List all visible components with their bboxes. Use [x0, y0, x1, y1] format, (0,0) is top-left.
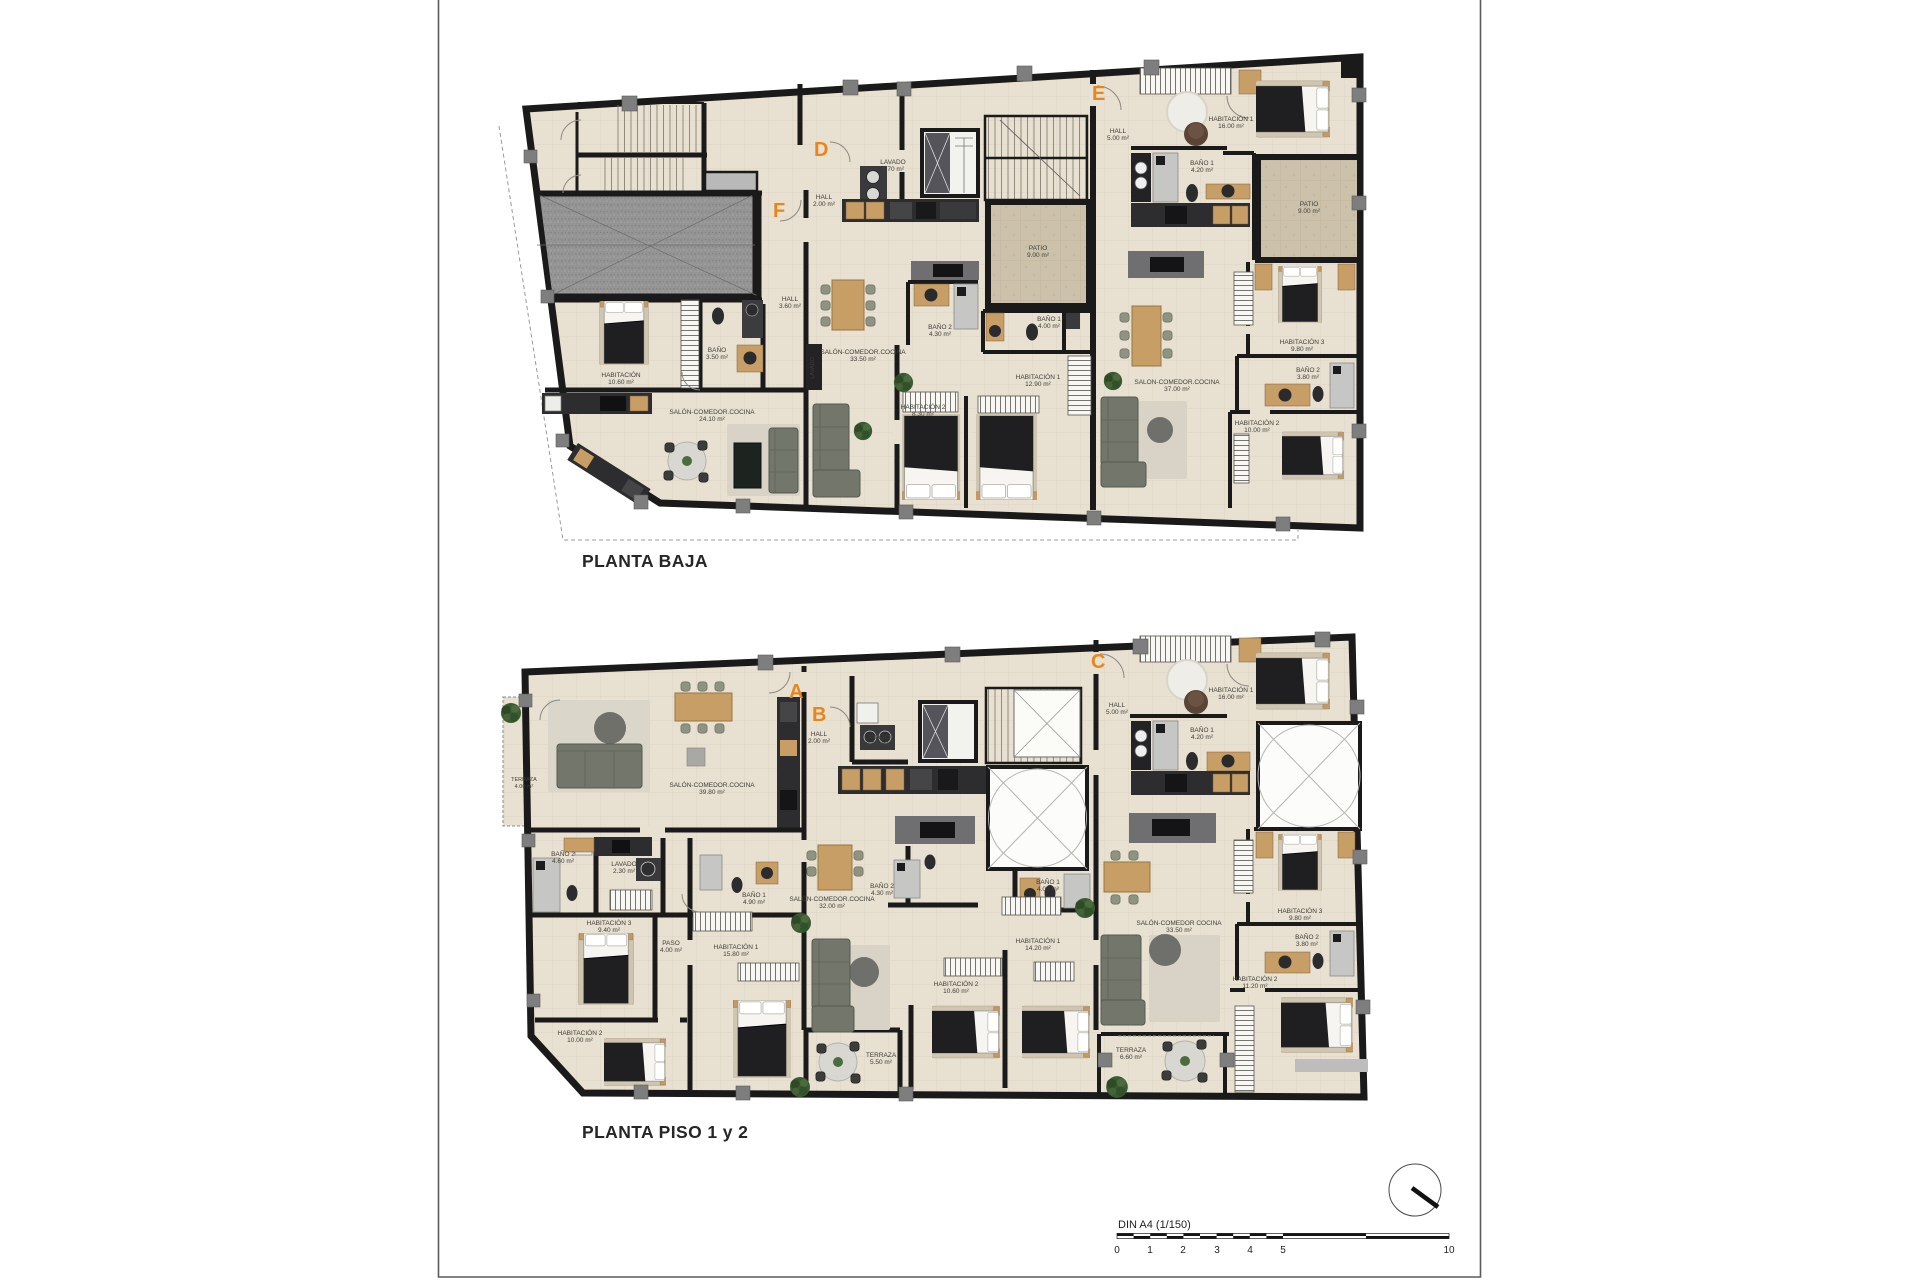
svg-text:3.80 m²: 3.80 m²: [1296, 941, 1319, 948]
svg-text:4.90 m²: 4.90 m²: [743, 899, 766, 906]
svg-text:PASO: PASO: [662, 940, 680, 947]
svg-text:16.00 m²: 16.00 m²: [1218, 694, 1244, 701]
svg-text:BAÑO: BAÑO: [708, 345, 726, 354]
svg-text:HABITACIÓN 3: HABITACIÓN 3: [1280, 337, 1325, 346]
svg-text:TERRAZA: TERRAZA: [1116, 1047, 1147, 1054]
svg-text:4.00 m²: 4.00 m²: [660, 947, 683, 954]
svg-text:39.80 m²: 39.80 m²: [699, 789, 725, 796]
svg-text:BAÑO 1: BAÑO 1: [1037, 314, 1061, 323]
svg-text:37.00 m²: 37.00 m²: [1164, 386, 1190, 393]
svg-text:BAÑO 1: BAÑO 1: [1036, 877, 1060, 886]
svg-text:3.80 m²: 3.80 m²: [866, 741, 889, 748]
svg-text:BAÑO 1: BAÑO 1: [1190, 725, 1214, 734]
svg-text:32.00 m²: 32.00 m²: [819, 903, 845, 910]
svg-text:C: C: [1091, 651, 1105, 673]
svg-text:8.30 m²: 8.30 m²: [912, 411, 935, 418]
svg-text:HABITACIÓN 2: HABITACIÓN 2: [558, 1028, 603, 1037]
svg-text:9.80 m²: 9.80 m²: [1291, 346, 1314, 353]
svg-text:2.70 m²: 2.70 m²: [882, 166, 905, 173]
svg-text:16.00 m²: 16.00 m²: [1218, 123, 1244, 130]
svg-text:1: 1: [1147, 1245, 1153, 1256]
svg-text:B: B: [812, 704, 826, 726]
svg-text:HABITACIÓN 3: HABITACIÓN 3: [1278, 906, 1323, 915]
svg-text:3.80 m²: 3.80 m²: [1297, 374, 1320, 381]
svg-text:PATIO: PATIO: [1300, 201, 1319, 208]
svg-text:4.20 m²: 4.20 m²: [1191, 167, 1214, 174]
svg-text:9.80 m²: 9.80 m²: [1289, 915, 1312, 922]
svg-text:10.60 m²: 10.60 m²: [943, 988, 969, 995]
svg-text:4.20 m²: 4.20 m²: [1191, 734, 1214, 741]
svg-text:HABITACIÓN 3: HABITACIÓN 3: [587, 918, 632, 927]
svg-text:9.00 m²: 9.00 m²: [1027, 252, 1050, 259]
svg-text:F: F: [773, 200, 785, 222]
svg-text:HALL: HALL: [1110, 128, 1127, 135]
svg-text:5.50 m²: 5.50 m²: [870, 1059, 893, 1066]
svg-text:HALL: HALL: [816, 194, 833, 201]
svg-text:0: 0: [1114, 1245, 1120, 1256]
svg-text:9.40 m²: 9.40 m²: [598, 927, 621, 934]
svg-text:5.00 m²: 5.00 m²: [1106, 709, 1129, 716]
svg-text:10.00 m²: 10.00 m²: [567, 1037, 593, 1044]
svg-text:4.00 m²: 4.00 m²: [1038, 323, 1061, 330]
svg-text:6.60 m²: 6.60 m²: [1120, 1054, 1143, 1061]
svg-text:HABITACIÓN 1: HABITACIÓN 1: [1016, 936, 1061, 945]
svg-text:BAÑO 1: BAÑO 1: [742, 890, 766, 899]
svg-text:SALÓN-COMEDOR.COCINA: SALÓN-COMEDOR.COCINA: [820, 347, 906, 356]
svg-text:BAÑO 2: BAÑO 2: [1296, 365, 1320, 374]
svg-text:4.00 m²: 4.00 m²: [515, 784, 534, 790]
svg-text:LAVADO: LAVADO: [864, 734, 889, 741]
svg-text:TERRAZA: TERRAZA: [511, 777, 537, 783]
svg-text:2.00 m²: 2.00 m²: [808, 738, 831, 745]
svg-text:BAÑO 2: BAÑO 2: [870, 881, 894, 890]
svg-text:3.50 m²: 3.50 m²: [706, 354, 729, 361]
svg-text:LAVADO: LAVADO: [810, 357, 816, 379]
svg-text:15.80 m²: 15.80 m²: [723, 951, 749, 958]
svg-text:14.20 m²: 14.20 m²: [1025, 945, 1051, 952]
svg-text:E: E: [1092, 83, 1105, 105]
svg-text:PLANTA PISO 1 y 2: PLANTA PISO 1 y 2: [582, 1122, 748, 1142]
svg-text:HABITACIÓN 1: HABITACIÓN 1: [1209, 114, 1254, 123]
svg-text:HABITACIÓN 2: HABITACIÓN 2: [1233, 974, 1278, 983]
svg-text:2.30 m²: 2.30 m²: [613, 868, 636, 875]
svg-text:2: 2: [1180, 1245, 1186, 1256]
svg-text:33.50 m²: 33.50 m²: [1166, 927, 1192, 934]
svg-text:4.30 m²: 4.30 m²: [929, 331, 952, 338]
svg-text:10.00 m²: 10.00 m²: [1244, 427, 1270, 434]
svg-text:DIN A4 (1/150): DIN A4 (1/150): [1118, 1219, 1191, 1231]
svg-text:LAVADO: LAVADO: [880, 159, 905, 166]
svg-text:2.00 m²: 2.00 m²: [813, 201, 836, 208]
svg-text:HABITACIÓN 2: HABITACIÓN 2: [934, 979, 979, 988]
svg-text:HABITACIÓN 2: HABITACIÓN 2: [901, 402, 946, 411]
svg-text:HABITACIÓN 1: HABITACIÓN 1: [1016, 372, 1061, 381]
svg-text:10.60 m²: 10.60 m²: [608, 379, 634, 386]
svg-text:24.10 m²: 24.10 m²: [699, 416, 725, 423]
svg-text:4: 4: [1247, 1245, 1253, 1256]
svg-text:SALÓN-COMEDOR.COCINA: SALÓN-COMEDOR.COCINA: [789, 894, 875, 903]
svg-text:LAVADO: LAVADO: [611, 861, 636, 868]
svg-text:4.60 m²: 4.60 m²: [552, 858, 575, 865]
svg-text:12.90 m²: 12.90 m²: [1025, 381, 1051, 388]
svg-text:11.20 m²: 11.20 m²: [1242, 983, 1268, 990]
svg-text:PLANTA BAJA: PLANTA BAJA: [582, 551, 708, 571]
svg-text:SALÓN-COMEDOR COCINA: SALÓN-COMEDOR COCINA: [1136, 918, 1222, 927]
svg-text:HABITACIÓN 1: HABITACIÓN 1: [714, 942, 759, 951]
svg-text:BAÑO 2: BAÑO 2: [928, 322, 952, 331]
svg-text:BAÑO 1: BAÑO 1: [1190, 158, 1214, 167]
svg-text:SALON-COMEDOR.COCINA: SALON-COMEDOR.COCINA: [1134, 379, 1220, 386]
svg-text:3.60 m²: 3.60 m²: [779, 303, 802, 310]
svg-text:HALL: HALL: [811, 731, 828, 738]
svg-text:D: D: [814, 139, 828, 161]
svg-text:SALÓN-COMEDOR.COCINA: SALÓN-COMEDOR.COCINA: [669, 407, 755, 416]
svg-text:HABITACIÓN: HABITACIÓN: [601, 370, 641, 379]
svg-text:4.00 m²: 4.00 m²: [1037, 886, 1060, 893]
svg-text:PATIO: PATIO: [1029, 245, 1048, 252]
svg-text:SALÓN-COMEDOR.COCINA: SALÓN-COMEDOR.COCINA: [669, 780, 755, 789]
svg-text:9.00 m²: 9.00 m²: [1298, 208, 1321, 215]
svg-text:5.00 m²: 5.00 m²: [1107, 135, 1130, 142]
svg-text:3: 3: [1214, 1245, 1220, 1256]
svg-text:TERRAZA: TERRAZA: [866, 1052, 897, 1059]
svg-text:A: A: [789, 681, 803, 703]
svg-text:10: 10: [1443, 1245, 1455, 1256]
svg-text:HABITACIÓN 1: HABITACIÓN 1: [1209, 685, 1254, 694]
svg-text:BAÑO 2: BAÑO 2: [551, 849, 575, 858]
svg-text:HALL: HALL: [1109, 702, 1126, 709]
svg-text:HABITACIÓN 2: HABITACIÓN 2: [1235, 418, 1280, 427]
svg-text:HALL: HALL: [782, 296, 799, 303]
svg-text:5: 5: [1280, 1245, 1286, 1256]
svg-text:BAÑO 2: BAÑO 2: [1295, 932, 1319, 941]
svg-text:33.50 m²: 33.50 m²: [850, 356, 876, 363]
